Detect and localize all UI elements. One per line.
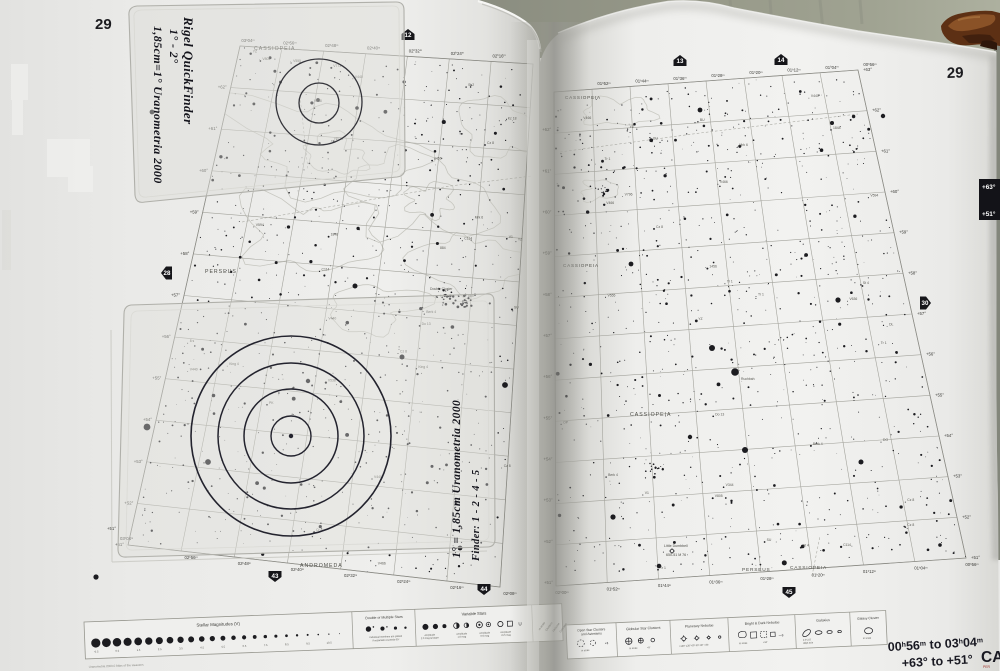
svg-text:St 4: St 4: [803, 544, 809, 548]
svg-text:Tr 1: Tr 1: [758, 293, 764, 297]
svg-text:+61°: +61°: [881, 148, 890, 153]
svg-text:PERSEUS: PERSEUS: [205, 269, 237, 275]
svg-text:+51°: +51°: [971, 555, 980, 560]
svg-text:Ruchbah: Ruchbah: [741, 377, 755, 381]
svg-text:13: 13: [677, 58, 684, 65]
svg-text:30: 30: [922, 300, 929, 307]
svg-text:BU: BU: [653, 136, 658, 140]
svg-text:Tr 1: Tr 1: [727, 280, 733, 284]
svg-text:Berk 4: Berk 4: [813, 442, 823, 446]
svg-text:Mrk 6: Mrk 6: [475, 216, 484, 220]
svg-text:to scale: to scale: [629, 647, 638, 650]
svg-text:align axis: align axis: [803, 641, 814, 644]
svg-text:1° = 1,85cm Uranometria 2000: 1° = 1,85cm Uranometria 2000: [451, 400, 463, 558]
svg-text:+58°: +58°: [908, 270, 917, 275]
svg-text:C114: C114: [464, 237, 472, 241]
svg-text:+60°: +60°: [890, 189, 899, 194]
svg-text:1° - 2°: 1° - 2°: [167, 29, 181, 63]
svg-text:Rigel QuickFinder: Rigel QuickFinder: [181, 16, 196, 125]
svg-text:Do 13: Do 13: [715, 412, 724, 416]
svg-text:St 2: St 2: [468, 83, 474, 87]
svg-text:CA: CA: [981, 649, 1000, 666]
svg-text:PERSEUS: PERSEUS: [742, 567, 771, 573]
svg-text:44: 44: [481, 586, 488, 593]
svg-text:+57°: +57°: [917, 311, 926, 316]
svg-text:1456: 1456: [434, 157, 442, 161]
svg-text:Little Dumbbell: Little Dumbbell: [664, 544, 688, 548]
svg-text:V1: V1: [645, 491, 649, 495]
svg-text:Double Cluster: Double Cluster: [430, 287, 453, 291]
svg-text:884: 884: [440, 246, 446, 250]
svg-text:1.0 mag: 1.0 mag: [457, 635, 466, 638]
svg-text:+58°: +58°: [180, 251, 189, 256]
svg-text:to scale: to scale: [863, 637, 872, 640]
svg-text:PER: PER: [983, 665, 991, 669]
svg-text:V344: V344: [726, 483, 734, 487]
svg-text:St 4: St 4: [863, 281, 869, 285]
svg-text:V594: V594: [256, 223, 264, 227]
svg-text:<0.5 mag: <0.5 mag: [501, 634, 512, 637]
svg-text:650-51 M 76: 650-51 M 76: [666, 553, 686, 557]
svg-text:V440: V440: [811, 94, 819, 98]
svg-text:YZ: YZ: [698, 317, 702, 321]
svg-text:BU: BU: [700, 118, 705, 122]
svg-text:DL: DL: [889, 323, 893, 327]
svg-text:V796: V796: [625, 193, 633, 197]
svg-text:43: 43: [272, 573, 279, 580]
svg-text:1,85cm=1° Uranometria 2000: 1,85cm=1° Uranometria 2000: [151, 26, 165, 184]
svg-text:<10′: <10′: [763, 641, 768, 644]
svg-text:+59°: +59°: [899, 230, 908, 235]
svg-text:+63°: +63°: [982, 183, 996, 191]
svg-text:45: 45: [786, 589, 793, 596]
svg-text:+57°: +57°: [171, 293, 180, 298]
svg-text:Galaxies: Galaxies: [816, 618, 830, 623]
svg-text:12: 12: [405, 32, 412, 39]
svg-text:Berk 4: Berk 4: [608, 473, 618, 477]
svg-text:V466: V466: [720, 180, 728, 184]
svg-text:V555: V555: [608, 293, 616, 297]
svg-text:+51°: +51°: [982, 210, 996, 218]
svg-text:V636: V636: [849, 297, 857, 301]
svg-text:-0.5: -0.5: [94, 649, 99, 653]
svg-text:Tr 1: Tr 1: [881, 341, 887, 345]
svg-text:DO: DO: [883, 438, 888, 442]
svg-text:V594: V594: [870, 194, 878, 198]
svg-text:Cz 8: Cz 8: [504, 464, 511, 468]
svg-text:SU: SU: [767, 538, 772, 542]
svg-text:ANDROMEDA: ANDROMEDA: [300, 563, 343, 569]
svg-text:Finder: 1 - 2 - 4 - 5: Finder: 1 - 2 - 4 - 5: [471, 469, 482, 562]
svg-text:Cz 8: Cz 8: [907, 498, 914, 502]
svg-text:Cz 8: Cz 8: [907, 523, 914, 527]
svg-text:V805: V805: [715, 494, 723, 498]
svg-text:+63°: +63°: [863, 67, 872, 72]
svg-text:Variable Stars: Variable Stars: [461, 611, 486, 617]
svg-text:C114: C114: [843, 543, 851, 547]
svg-text:29: 29: [947, 64, 964, 82]
svg-text:C114: C114: [322, 267, 330, 271]
svg-text:V466: V466: [606, 201, 614, 205]
svg-text:29: 29: [95, 16, 112, 33]
svg-text:Tr 1: Tr 1: [660, 566, 666, 570]
svg-text:0.5 mag: 0.5 mag: [480, 634, 489, 637]
svg-text:28: 28: [164, 270, 171, 277]
svg-text:+62°: +62°: [872, 108, 881, 113]
svg-text:to scale: to scale: [739, 642, 748, 645]
svg-text:1456: 1456: [709, 265, 717, 269]
svg-text:+3: +3: [605, 641, 609, 645]
svg-text:Cz 8: Cz 8: [656, 225, 663, 229]
svg-text:+55°: +55°: [935, 392, 944, 397]
svg-text:Cz 8: Cz 8: [487, 141, 494, 145]
svg-text:+54°: +54°: [944, 433, 953, 438]
svg-text:1848: 1848: [833, 126, 841, 130]
svg-text:Tr 1: Tr 1: [605, 157, 611, 161]
svg-text:+53°: +53°: [953, 474, 962, 479]
svg-text:+59°: +59°: [190, 209, 199, 214]
svg-text:10.5: 10.5: [327, 640, 333, 644]
svg-text:CASSIOPEIA: CASSIOPEIA: [630, 412, 671, 418]
svg-text:Mrk 6: Mrk 6: [739, 143, 748, 147]
svg-text:+52°: +52°: [962, 514, 971, 519]
svg-text:1848: 1848: [331, 233, 339, 237]
svg-text:—3: —3: [779, 633, 784, 637]
svg-text:+56°: +56°: [926, 352, 935, 357]
svg-text:14: 14: [778, 57, 785, 64]
svg-text:YZ: YZ: [630, 125, 634, 129]
svg-text:CASSIOPEIA: CASSIOPEIA: [790, 565, 827, 571]
svg-text:V466: V466: [378, 562, 386, 566]
